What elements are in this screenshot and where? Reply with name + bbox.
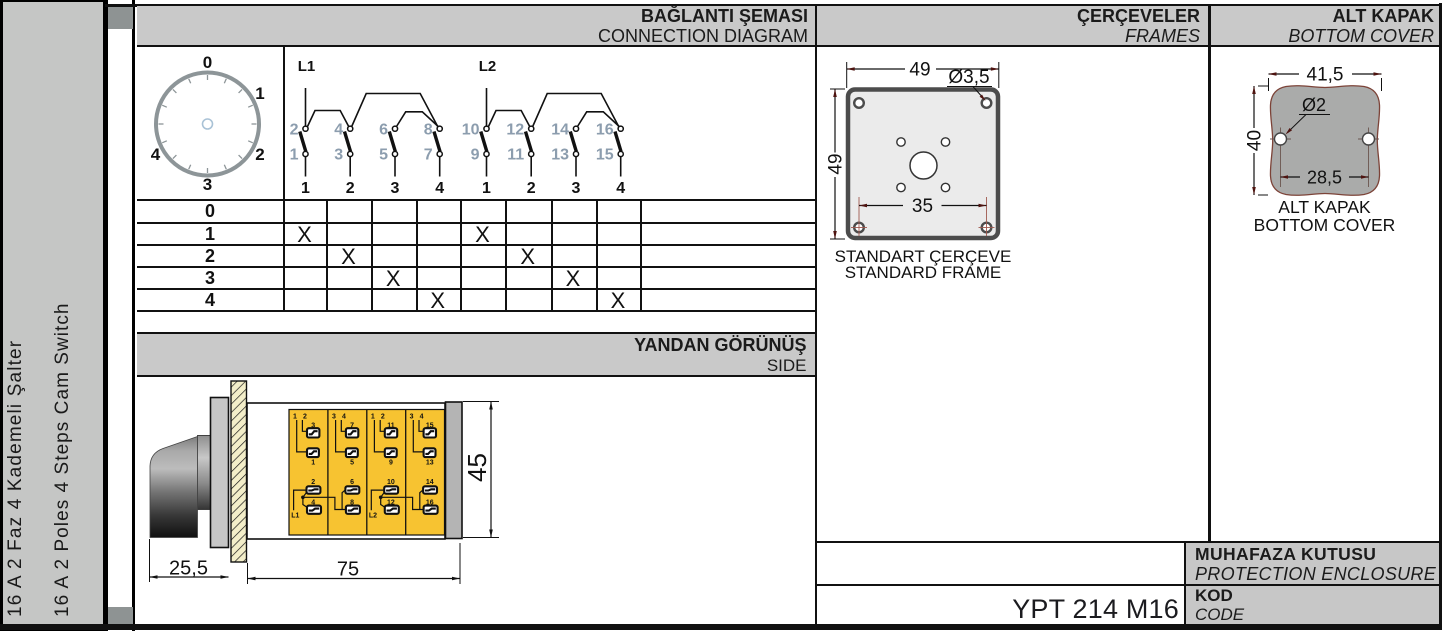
svg-text:1: 1: [290, 147, 299, 164]
svg-text:2: 2: [527, 180, 536, 197]
svg-text:2: 2: [303, 413, 307, 420]
svg-text:13: 13: [551, 147, 569, 164]
svg-text:1: 1: [482, 180, 491, 197]
svg-text:2: 2: [290, 122, 299, 139]
svg-text:4: 4: [435, 180, 444, 197]
svg-text:1: 1: [255, 84, 264, 103]
svg-text:15: 15: [596, 147, 614, 164]
svg-text:75: 75: [337, 559, 359, 581]
svg-text:1: 1: [293, 413, 297, 420]
svg-text:4: 4: [334, 122, 343, 139]
svg-text:41,5: 41,5: [1307, 65, 1344, 86]
svg-text:10: 10: [387, 479, 395, 486]
svg-text:Ø2: Ø2: [1302, 95, 1326, 115]
svg-text:35: 35: [912, 196, 933, 217]
svg-text:STANDARD FRAME: STANDARD FRAME: [845, 263, 1001, 282]
svg-text:6: 6: [350, 479, 354, 486]
svg-text:45: 45: [462, 453, 492, 482]
svg-text:4: 4: [342, 413, 346, 420]
svg-text:Ø3,5: Ø3,5: [948, 67, 989, 88]
svg-text:L1: L1: [291, 513, 299, 520]
svg-text:1: 1: [301, 180, 310, 197]
svg-text:28,5: 28,5: [1307, 168, 1342, 188]
svg-text:9: 9: [471, 147, 480, 164]
svg-text:3: 3: [391, 180, 400, 197]
svg-text:L2: L2: [369, 513, 377, 520]
svg-text:1: 1: [371, 413, 375, 420]
svg-text:0: 0: [203, 53, 212, 72]
svg-text:3: 3: [334, 147, 343, 164]
svg-text:4: 4: [151, 145, 161, 164]
svg-text:49: 49: [909, 60, 930, 81]
svg-text:2: 2: [381, 413, 385, 420]
svg-text:13: 13: [426, 460, 434, 467]
svg-text:ALT KAPAK: ALT KAPAK: [1278, 197, 1371, 217]
svg-text:3: 3: [572, 180, 581, 197]
svg-text:14: 14: [426, 479, 434, 486]
svg-text:8: 8: [424, 122, 433, 139]
svg-text:49: 49: [826, 153, 847, 174]
svg-text:7: 7: [424, 147, 433, 164]
svg-text:4: 4: [420, 413, 424, 420]
svg-text:BOTTOM COVER: BOTTOM COVER: [1254, 215, 1396, 235]
svg-text:2: 2: [311, 479, 315, 486]
svg-text:1: 1: [311, 460, 315, 467]
svg-text:3: 3: [203, 175, 212, 194]
svg-text:5: 5: [350, 460, 354, 467]
svg-text:12: 12: [506, 122, 524, 139]
svg-text:2: 2: [346, 180, 355, 197]
svg-text:5: 5: [379, 147, 388, 164]
svg-text:25,5: 25,5: [169, 558, 208, 580]
svg-text:40: 40: [1245, 130, 1266, 151]
svg-text:14: 14: [551, 122, 569, 139]
svg-text:2: 2: [255, 145, 264, 164]
svg-text:4: 4: [616, 180, 625, 197]
svg-text:L1: L1: [298, 58, 316, 75]
svg-text:10: 10: [462, 122, 480, 139]
svg-text:3: 3: [332, 413, 336, 420]
svg-text:16: 16: [596, 122, 614, 139]
svg-text:L2: L2: [479, 58, 497, 75]
svg-text:3: 3: [410, 413, 414, 420]
svg-text:6: 6: [379, 122, 388, 139]
svg-text:11: 11: [507, 147, 524, 164]
svg-text:9: 9: [389, 460, 393, 467]
